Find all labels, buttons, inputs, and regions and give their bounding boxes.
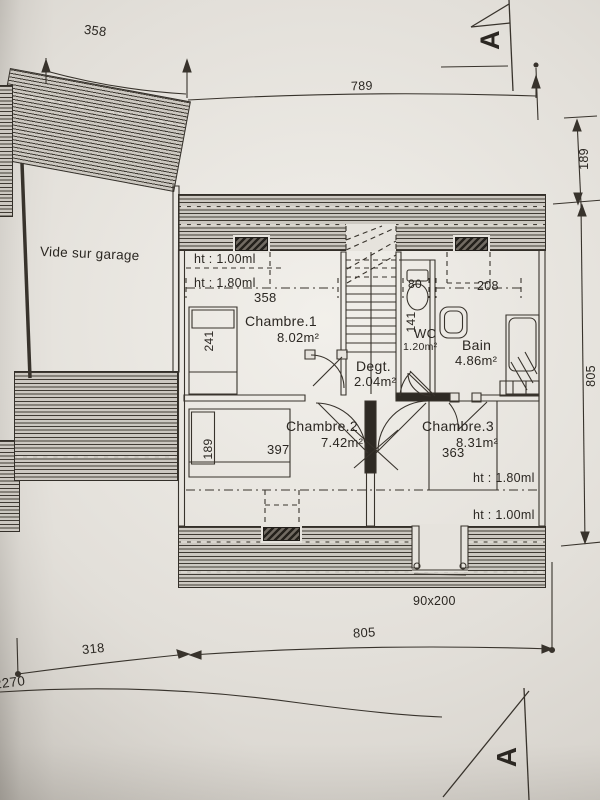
height-bottom-100: ht : 1.00ml (473, 509, 535, 522)
floorplan-photo: Vide sur garage 358 789 189 805 ht : 1.0… (0, 0, 600, 800)
dim-right-top: 189 (577, 141, 591, 177)
room-degagement-name: Degt. (356, 359, 391, 374)
dim-wc-width: 80 (408, 278, 422, 291)
section-marker-a-bottom: A (491, 741, 523, 773)
dim-chambre1-width: 358 (254, 291, 277, 305)
dim-chambre2-width: 397 (267, 443, 290, 457)
room-degagement-area: 2.04m² (354, 375, 396, 389)
room-chambre1-area: 8.02m² (277, 331, 319, 345)
door-recess (412, 526, 468, 575)
height-top-180: ht : 1.80ml (194, 277, 256, 290)
room-chambre2-area: 7.42m² (321, 436, 363, 450)
height-bottom-180: ht : 1.80ml (473, 472, 535, 485)
dim-overall-bottom: 805 (353, 625, 376, 640)
dim-door-size: 90x200 (413, 595, 456, 608)
dim-bottom-left: 318 (81, 641, 105, 657)
dim-chambre1-depth: 241 (202, 323, 216, 359)
room-chambre1-name: Chambre.1 (245, 314, 317, 329)
height-top-100: ht : 1.00ml (194, 253, 256, 266)
section-marker-a-top: A (474, 24, 506, 56)
dim-right-side: 805 (584, 358, 598, 394)
dimension-lines (0, 58, 600, 717)
room-bain-name: Bain (462, 338, 491, 353)
dim-overall-top: 789 (351, 80, 373, 94)
dim-garage-width: 358 (83, 23, 107, 39)
room-chambre3-name: Chambre.3 (422, 419, 494, 434)
room-wc-name: WC (414, 327, 436, 341)
plan-linework (0, 0, 600, 800)
room-bain-area: 4.86m² (455, 354, 497, 368)
room-wc-area: 1.20m² (403, 342, 437, 353)
room-chambre2-name: Chambre.2 (286, 419, 358, 434)
dim-chambre3-width: 363 (442, 446, 465, 460)
dim-chambre2-bed: 189 (201, 431, 215, 467)
dim-bain-width: 208 (477, 280, 499, 293)
